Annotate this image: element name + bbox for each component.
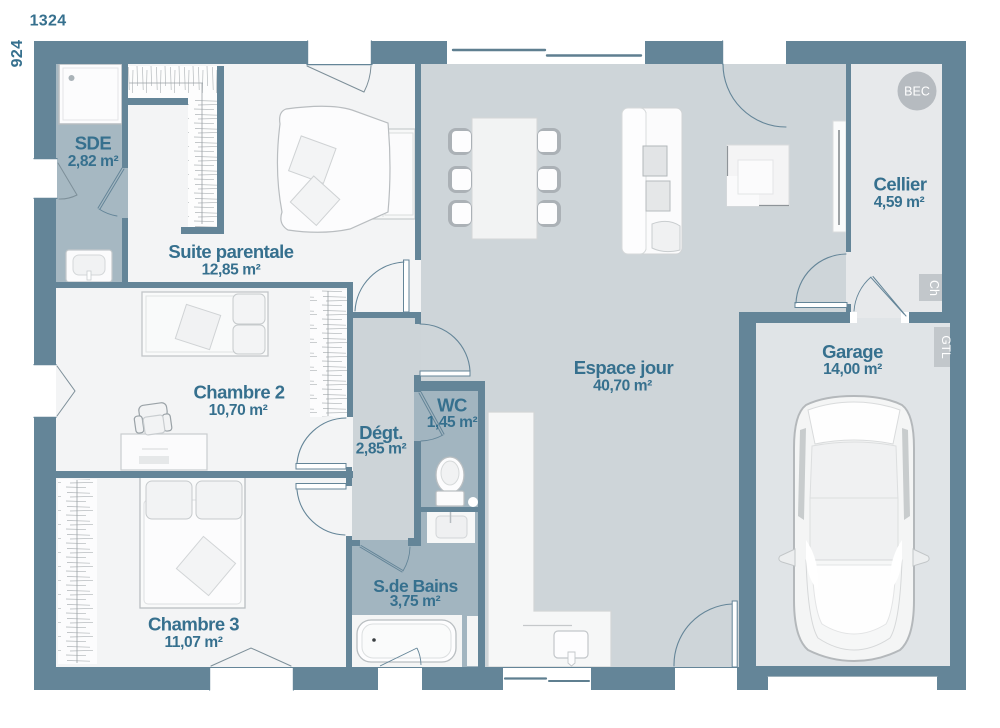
svg-text:4,59 m²: 4,59 m² [874,194,925,211]
svg-text:2,85 m²: 2,85 m² [356,441,407,458]
svg-text:Suite parentale: Suite parentale [168,241,293,262]
svg-text:11,07 m²: 11,07 m² [165,634,223,651]
svg-text:GTL: GTL [939,335,953,359]
svg-text:Garage: Garage [822,341,883,362]
svg-text:Chambre 3: Chambre 3 [148,614,239,635]
svg-text:Cellier: Cellier [873,174,926,195]
svg-text:1,45 m²: 1,45 m² [427,414,478,431]
svg-text:40,70 m²: 40,70 m² [593,378,652,395]
svg-text:Ch: Ch [927,280,941,296]
svg-text:2,82 m²: 2,82 m² [68,153,119,170]
svg-text:WC: WC [437,395,467,416]
svg-text:3,75 m²: 3,75 m² [390,593,441,610]
svg-text:SDE: SDE [75,133,112,154]
svg-text:12,85 m²: 12,85 m² [202,262,261,279]
svg-text:14,00 m²: 14,00 m² [823,361,882,378]
svg-text:BEC: BEC [904,85,930,99]
svg-text:10,70 m²: 10,70 m² [209,402,268,419]
svg-text:Chambre 2: Chambre 2 [193,382,284,403]
svg-text:1324: 1324 [30,13,67,30]
svg-text:924: 924 [9,40,26,68]
svg-text:Espace jour: Espace jour [574,357,674,378]
